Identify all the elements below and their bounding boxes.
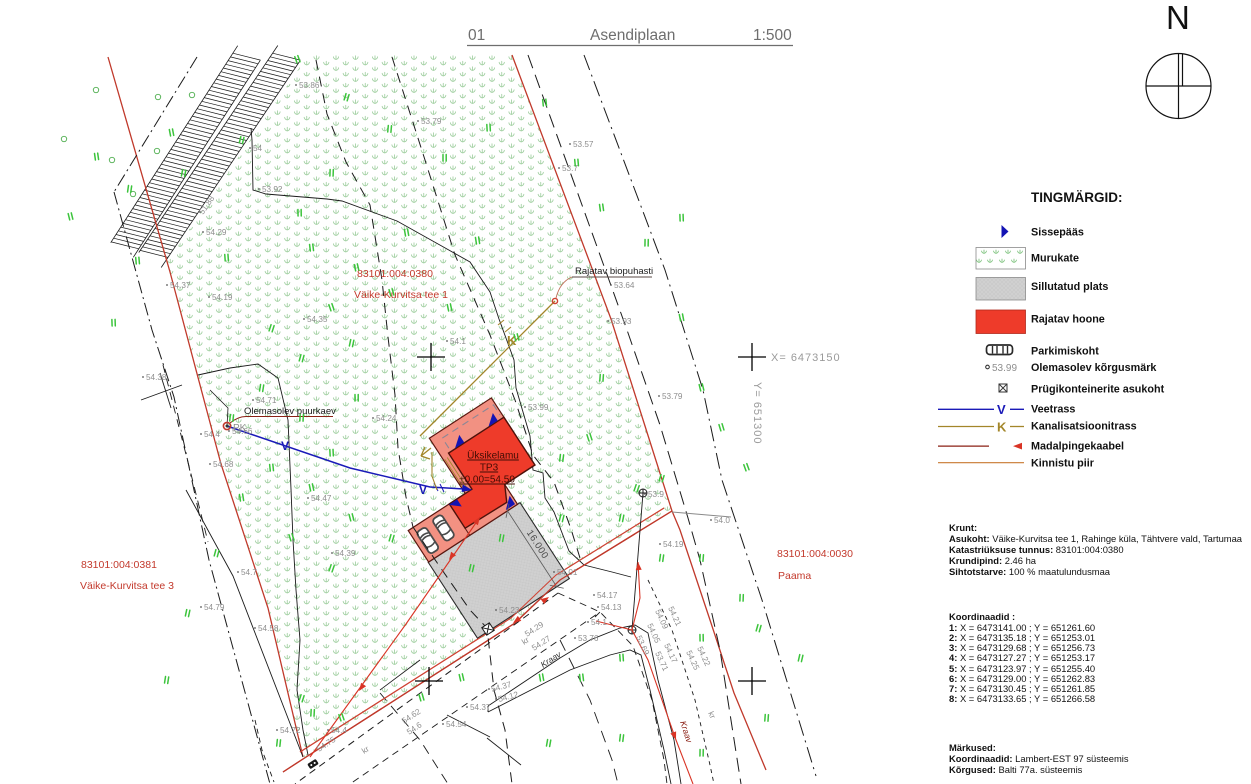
svg-text:±0.00=54.50: ±0.00=54.50 <box>459 475 515 486</box>
svg-text:Sillutatud plats: Sillutatud plats <box>1031 281 1108 293</box>
svg-text:53.76: 53.76 <box>578 634 599 643</box>
svg-text:53.93: 53.93 <box>611 317 632 326</box>
svg-text:54.38: 54.38 <box>146 373 167 382</box>
svg-text:54.13: 54.13 <box>601 603 622 612</box>
svg-text:54.79: 54.79 <box>204 603 225 612</box>
svg-text:Kanalisatsioonitrass: Kanalisatsioonitrass <box>1031 421 1137 433</box>
svg-text:54.4: 54.4 <box>204 430 220 439</box>
svg-text:Olemasolev kõrgusmärk: Olemasolev kõrgusmärk <box>1031 362 1157 374</box>
svg-text:Krunt:: Krunt: <box>949 522 977 533</box>
svg-text:Rajatav biopuhasti: Rajatav biopuhasti <box>575 266 653 277</box>
svg-text:Madalpingekaabel: Madalpingekaabel <box>1031 441 1124 453</box>
svg-text:Kõrgused: Balti 77a. süsteemis: Kõrgused: Balti 77a. süsteemis <box>949 764 1083 775</box>
svg-text:54.35: 54.35 <box>307 315 328 324</box>
svg-text:54.24: 54.24 <box>376 414 397 423</box>
svg-text:Parkimiskoht: Parkimiskoht <box>1031 346 1099 358</box>
svg-text:TP3: TP3 <box>480 463 499 474</box>
svg-text:83101:004:0380: 83101:004:0380 <box>357 268 433 280</box>
svg-text:54.01: 54.01 <box>557 568 578 577</box>
svg-text:54.58: 54.58 <box>258 624 279 633</box>
svg-text:54.7: 54.7 <box>241 568 257 577</box>
svg-text:N: N <box>1166 0 1190 36</box>
svg-text:Koordinaadid: Lambert-EST 97 s: Koordinaadid: Lambert-EST 97 süsteemis <box>949 753 1129 764</box>
svg-text:53.99: 53.99 <box>528 403 549 412</box>
svg-text:54.0: 54.0 <box>714 516 730 525</box>
svg-text:54.68: 54.68 <box>213 460 234 469</box>
svg-text:83101:004:0381: 83101:004:0381 <box>81 559 157 571</box>
svg-text:54.4: 54.4 <box>331 726 347 735</box>
svg-text:Rajatav hoone: Rajatav hoone <box>1031 314 1105 326</box>
svg-text:Asukoht: Väike-Kurvitsa tee 1,: Asukoht: Väike-Kurvitsa tee 1, Rahinge k… <box>949 533 1243 544</box>
svg-text:53.79: 53.79 <box>421 117 442 126</box>
svg-text:Asendiplaan: Asendiplaan <box>590 27 675 44</box>
svg-text:54.37: 54.37 <box>470 703 491 712</box>
svg-text:54.37: 54.37 <box>170 281 191 290</box>
svg-text:54: 54 <box>253 144 263 153</box>
svg-text:V: V <box>281 439 289 453</box>
svg-text:Prügikonteinerite asukoht: Prügikonteinerite asukoht <box>1031 384 1165 396</box>
svg-text:54.47: 54.47 <box>311 494 332 503</box>
svg-text:53.79: 53.79 <box>662 392 683 401</box>
svg-text:54.17: 54.17 <box>597 591 618 600</box>
svg-text:54.39: 54.39 <box>335 549 356 558</box>
svg-text:54.66: 54.66 <box>232 427 253 436</box>
svg-text:53.9: 53.9 <box>648 490 664 499</box>
svg-text:54.1: 54.1 <box>591 618 607 627</box>
svg-text:Kinnistu piir: Kinnistu piir <box>1031 458 1095 470</box>
svg-text:Veetrass: Veetrass <box>1031 404 1075 416</box>
svg-text:Olemasolev puurkaev: Olemasolev puurkaev <box>244 406 336 417</box>
svg-text:Murukate: Murukate <box>1031 253 1079 265</box>
svg-text:Sissepääs: Sissepääs <box>1031 227 1084 239</box>
svg-text:54.19: 54.19 <box>663 540 684 549</box>
svg-text:Koordinaadid :: Koordinaadid : <box>949 611 1015 622</box>
svg-text:Märkused:: Märkused: <box>949 742 996 753</box>
svg-text:54.71: 54.71 <box>256 396 277 405</box>
svg-text:53.57: 53.57 <box>573 140 594 149</box>
svg-text:54.1: 54.1 <box>450 337 466 346</box>
svg-text:V: V <box>997 402 1006 417</box>
svg-text:Üksikelamu: Üksikelamu <box>467 450 519 462</box>
svg-text:54.29: 54.29 <box>206 228 227 237</box>
svg-text:54.72: 54.72 <box>280 726 301 735</box>
svg-text:TINGMÄRGID:: TINGMÄRGID: <box>1031 190 1123 205</box>
svg-text:54.23: 54.23 <box>499 606 520 615</box>
svg-text:53.92: 53.92 <box>262 185 283 194</box>
svg-text:8: X = 6473133.65 ; Y = 651266: 8: X = 6473133.65 ; Y = 651266.58 <box>949 693 1095 704</box>
svg-text:Väike-Kurvitsa tee 1: Väike-Kurvitsa tee 1 <box>354 289 448 301</box>
svg-text:4: X = 6473127.27 ; Y = 651253: 4: X = 6473127.27 ; Y = 651253.17 <box>949 652 1095 663</box>
svg-text:Väike-Kurvitsa tee 3: Väike-Kurvitsa tee 3 <box>80 580 174 592</box>
svg-text:54.19: 54.19 <box>212 293 233 302</box>
svg-text:83101:004:0030: 83101:004:0030 <box>777 548 853 560</box>
svg-text:Sihtotstarve: 100 % maatulundu: Sihtotstarve: 100 % maatulundusmaa <box>949 566 1111 577</box>
svg-text:53.86: 53.86 <box>299 81 320 90</box>
svg-text:Krundipind: 2.46 ha: Krundipind: 2.46 ha <box>949 555 1037 566</box>
svg-text:X= 6473150: X= 6473150 <box>771 352 841 364</box>
svg-text:01: 01 <box>468 27 485 44</box>
svg-text:V: V <box>419 483 427 497</box>
svg-text:Katastriüksuse tunnus: 83101:0: Katastriüksuse tunnus: 83101:004:0380 <box>949 544 1124 555</box>
svg-text:1:500: 1:500 <box>753 27 792 44</box>
svg-text:K: K <box>997 420 1007 435</box>
svg-text:53.99: 53.99 <box>992 363 1017 374</box>
svg-text:Paama: Paama <box>778 570 811 582</box>
svg-text:Y= 651300: Y= 651300 <box>751 382 763 445</box>
svg-text:54.54: 54.54 <box>446 720 467 729</box>
svg-text:53.64: 53.64 <box>614 281 635 290</box>
